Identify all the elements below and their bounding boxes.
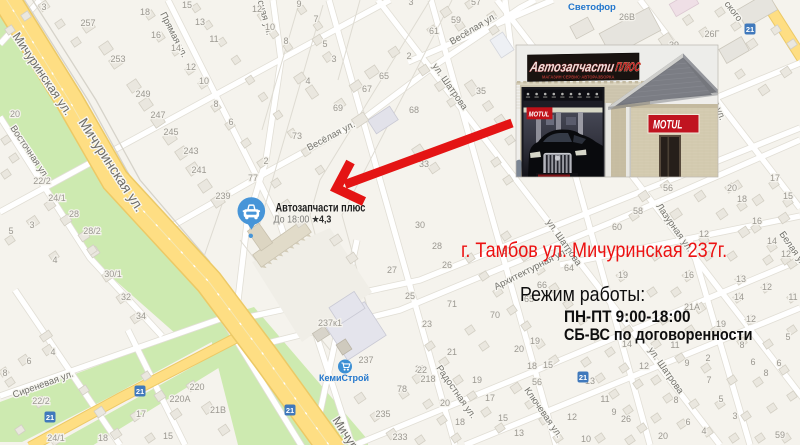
svg-text:13: 13: [736, 274, 746, 284]
svg-text:14: 14: [171, 43, 181, 53]
svg-text:4: 4: [305, 76, 310, 86]
svg-text:12: 12: [781, 249, 791, 259]
svg-text:247: 247: [150, 110, 165, 120]
svg-text:21: 21: [579, 373, 587, 382]
svg-text:28: 28: [69, 209, 79, 219]
svg-text:8: 8: [763, 368, 768, 378]
svg-text:11: 11: [600, 394, 609, 404]
svg-text:21: 21: [136, 387, 144, 396]
svg-text:26: 26: [442, 260, 452, 270]
svg-text:12: 12: [639, 361, 649, 371]
svg-text:21В: 21В: [210, 405, 226, 415]
svg-text:22: 22: [417, 365, 427, 375]
svg-text:22/2: 22/2: [33, 176, 51, 186]
svg-text:г. Тамбов ул. Мичуринская 237г: г. Тамбов ул. Мичуринская 237г.: [461, 239, 727, 263]
svg-text:18: 18: [455, 417, 465, 427]
svg-text:11: 11: [209, 34, 218, 44]
svg-text:233: 233: [392, 432, 407, 442]
svg-text:7: 7: [313, 14, 318, 24]
svg-text:6: 6: [750, 357, 755, 367]
svg-text:MOTUL: MOTUL: [529, 111, 550, 119]
svg-text:8: 8: [283, 36, 288, 46]
svg-text:20: 20: [10, 109, 20, 119]
svg-text:24/1: 24/1: [47, 433, 65, 443]
svg-text:18: 18: [140, 7, 150, 17]
svg-text:60: 60: [612, 222, 622, 232]
svg-text:4: 4: [52, 255, 57, 265]
svg-text:32: 32: [121, 292, 131, 302]
svg-text:4: 4: [701, 426, 706, 436]
svg-text:Светофор: Светофор: [568, 2, 616, 13]
svg-text:73: 73: [292, 131, 302, 141]
svg-text:30/1: 30/1: [104, 269, 122, 279]
svg-text:35: 35: [476, 86, 486, 96]
svg-text:13: 13: [195, 17, 205, 27]
svg-text:12: 12: [186, 62, 196, 72]
svg-text:СБ-ВС по договоренности: СБ-ВС по договоренности: [564, 326, 753, 344]
svg-text:13: 13: [514, 428, 524, 438]
svg-text:77: 77: [248, 173, 258, 183]
svg-text:220: 220: [189, 382, 204, 392]
svg-text:56: 56: [663, 183, 673, 193]
svg-text:MOTUL: MOTUL: [653, 119, 682, 132]
svg-text:20: 20: [658, 431, 668, 441]
svg-text:15: 15: [498, 413, 508, 423]
svg-text:4,3: 4,3: [319, 214, 332, 226]
svg-text:17: 17: [485, 393, 495, 403]
svg-text:14: 14: [734, 292, 744, 302]
svg-text:16: 16: [151, 30, 161, 40]
svg-text:18: 18: [98, 433, 108, 443]
svg-text:70: 70: [490, 310, 500, 320]
svg-text:5: 5: [785, 332, 790, 342]
svg-text:9: 9: [296, 0, 301, 9]
svg-text:26Г: 26Г: [705, 29, 720, 39]
svg-text:5: 5: [322, 39, 327, 49]
svg-text:26В: 26В: [619, 12, 635, 22]
svg-text:10: 10: [265, 22, 275, 32]
svg-text:19: 19: [472, 375, 482, 385]
svg-text:69: 69: [333, 103, 343, 113]
svg-text:МАГАЗИН·СЕРВИС·АВТОРАЗБОРКА: МАГАЗИН·СЕРВИС·АВТОРАЗБОРКА: [542, 74, 614, 79]
svg-text:12: 12: [699, 229, 709, 239]
svg-text:237к1: 237к1: [318, 318, 342, 328]
svg-text:3: 3: [732, 411, 737, 421]
svg-text:8: 8: [2, 368, 7, 378]
svg-text:21: 21: [447, 347, 457, 357]
svg-text:12: 12: [567, 412, 577, 422]
svg-text:10: 10: [199, 76, 209, 86]
svg-text:19: 19: [618, 270, 628, 280]
svg-text:8: 8: [213, 99, 218, 109]
svg-text:241: 241: [191, 165, 206, 175]
svg-text:27: 27: [387, 265, 397, 275]
svg-text:Автозапчасти плюс: Автозапчасти плюс: [276, 201, 366, 214]
svg-text:21: 21: [46, 413, 54, 422]
svg-text:2: 2: [406, 51, 411, 61]
svg-text:9: 9: [611, 407, 616, 417]
svg-text:5: 5: [718, 394, 723, 404]
svg-text:Автозапчасти: Автозапчасти: [528, 59, 615, 74]
svg-text:ПЛЮС: ПЛЮС: [614, 60, 641, 74]
svg-text:220А: 220А: [169, 394, 190, 404]
svg-text:2: 2: [705, 353, 710, 363]
svg-text:5: 5: [8, 226, 13, 236]
svg-text:245: 245: [163, 127, 178, 137]
svg-text:3: 3: [331, 54, 336, 64]
svg-text:15: 15: [783, 191, 793, 201]
svg-text:21: 21: [746, 25, 754, 34]
svg-text:4: 4: [50, 347, 55, 357]
svg-text:15: 15: [163, 431, 173, 441]
svg-text:237: 237: [358, 355, 373, 365]
svg-text:68: 68: [409, 105, 419, 115]
svg-text:15: 15: [543, 360, 553, 370]
svg-text:8: 8: [673, 395, 678, 405]
svg-text:12: 12: [762, 282, 772, 292]
svg-text:239: 239: [215, 191, 230, 201]
svg-text:Режим работы:: Режим работы:: [520, 284, 645, 306]
svg-text:58: 58: [633, 206, 643, 216]
svg-text:ПН-ПТ 9:00-18:00: ПН-ПТ 9:00-18:00: [564, 307, 690, 326]
svg-text:20: 20: [514, 344, 524, 354]
svg-text:218: 218: [420, 374, 435, 384]
svg-text:30: 30: [415, 220, 425, 230]
svg-text:9: 9: [684, 358, 689, 368]
svg-text:6: 6: [26, 356, 31, 366]
svg-text:253: 253: [110, 54, 125, 64]
svg-text:17: 17: [770, 173, 780, 183]
svg-text:67: 67: [362, 84, 372, 94]
svg-text:12: 12: [252, 4, 262, 14]
svg-text:6: 6: [228, 117, 233, 127]
svg-text:21: 21: [286, 406, 294, 415]
svg-text:14: 14: [767, 236, 777, 246]
svg-text:57: 57: [471, 0, 481, 7]
svg-text:15: 15: [182, 0, 192, 10]
svg-text:24/1: 24/1: [48, 193, 66, 203]
svg-text:16: 16: [684, 270, 694, 280]
svg-text:64: 64: [564, 263, 574, 273]
svg-text:249: 249: [135, 89, 150, 99]
svg-text:6: 6: [685, 417, 690, 427]
svg-text:56: 56: [532, 377, 542, 387]
svg-text:19: 19: [530, 336, 540, 346]
svg-text:243: 243: [183, 146, 198, 156]
svg-text:2: 2: [263, 156, 268, 166]
svg-text:235: 235: [375, 409, 390, 419]
svg-text:17: 17: [136, 409, 146, 419]
svg-text:65: 65: [379, 71, 389, 81]
svg-text:18: 18: [737, 194, 747, 204]
svg-text:До 18:00: До 18:00: [274, 214, 310, 226]
svg-text:12: 12: [746, 314, 756, 324]
svg-text:7: 7: [706, 375, 711, 385]
svg-text:18: 18: [527, 361, 537, 371]
svg-text:11: 11: [788, 292, 797, 302]
svg-text:25: 25: [405, 291, 415, 301]
svg-text:59: 59: [775, 430, 785, 440]
svg-text:3: 3: [408, 0, 413, 7]
svg-text:61: 61: [429, 26, 439, 36]
svg-text:78: 78: [397, 384, 407, 394]
svg-text:28/2: 28/2: [83, 226, 101, 236]
svg-text:20: 20: [440, 398, 450, 408]
svg-text:3: 3: [41, 2, 46, 12]
svg-text:22/2: 22/2: [32, 396, 50, 406]
svg-text:20: 20: [727, 183, 737, 193]
svg-text:КемиСтрой: КемиСтрой: [319, 373, 369, 383]
svg-text:6: 6: [776, 358, 781, 368]
svg-text:257: 257: [80, 18, 95, 28]
svg-text:26: 26: [621, 414, 631, 424]
svg-text:59: 59: [451, 15, 461, 25]
svg-text:3: 3: [29, 220, 34, 230]
svg-text:10: 10: [581, 434, 591, 444]
svg-text:34: 34: [136, 311, 146, 321]
svg-text:16: 16: [752, 216, 762, 226]
svg-text:23: 23: [422, 319, 432, 329]
svg-text:28: 28: [432, 241, 442, 251]
svg-text:71: 71: [447, 299, 457, 309]
